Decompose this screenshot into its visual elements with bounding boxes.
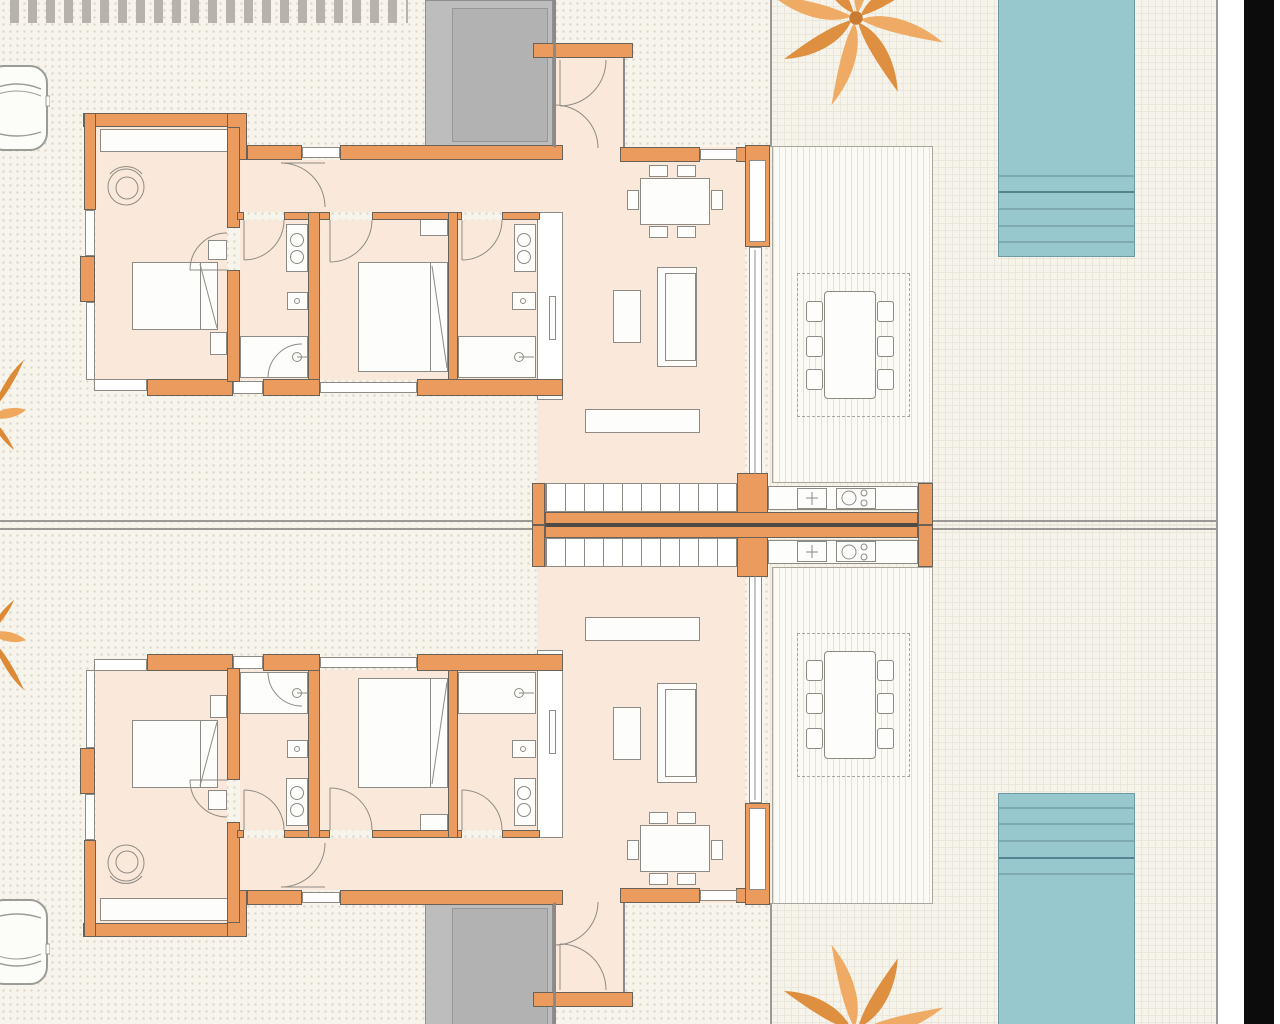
door-arc bbox=[190, 780, 227, 817]
shower-head-icon bbox=[515, 689, 535, 698]
door-arc bbox=[281, 163, 325, 207]
scan-border-black bbox=[1244, 0, 1274, 1024]
hob-icon bbox=[842, 490, 867, 506]
bed-fold-line bbox=[200, 682, 447, 786]
door-arc bbox=[281, 843, 325, 887]
faucet-icon bbox=[806, 492, 818, 505]
basin-icon bbox=[291, 234, 304, 264]
faucet-icon bbox=[806, 545, 818, 558]
hob-icon bbox=[842, 544, 867, 560]
armchair-icon bbox=[108, 167, 144, 205]
villa-half-lower bbox=[0, 525, 1280, 1024]
driveway-stripes bbox=[10, 0, 408, 23]
details-layer bbox=[0, 0, 1280, 525]
door-arc bbox=[244, 220, 284, 260]
toilet-icon bbox=[295, 747, 526, 752]
details-layer bbox=[0, 525, 1280, 1024]
toilet-icon bbox=[295, 299, 526, 304]
floorplan-scan bbox=[0, 0, 1280, 1024]
door-arc bbox=[330, 220, 372, 262]
door-arc bbox=[462, 790, 502, 830]
basin-icon bbox=[518, 234, 531, 264]
armchair-icon bbox=[108, 845, 144, 883]
villa-half-upper bbox=[0, 0, 1280, 525]
bed-fold-line bbox=[200, 264, 447, 368]
door-arc bbox=[244, 790, 284, 830]
shower-head-icon bbox=[293, 353, 309, 362]
shower-head-icon bbox=[293, 689, 309, 698]
door-arc bbox=[330, 788, 372, 830]
basin-icon bbox=[518, 787, 531, 817]
door-arc bbox=[462, 220, 502, 260]
door-arc bbox=[560, 944, 606, 990]
shower-head-icon bbox=[515, 353, 535, 362]
door-arc bbox=[555, 902, 598, 945]
basin-icon bbox=[291, 787, 304, 817]
door-arc bbox=[555, 105, 598, 148]
door-arc bbox=[190, 233, 227, 270]
door-arc bbox=[560, 60, 606, 106]
